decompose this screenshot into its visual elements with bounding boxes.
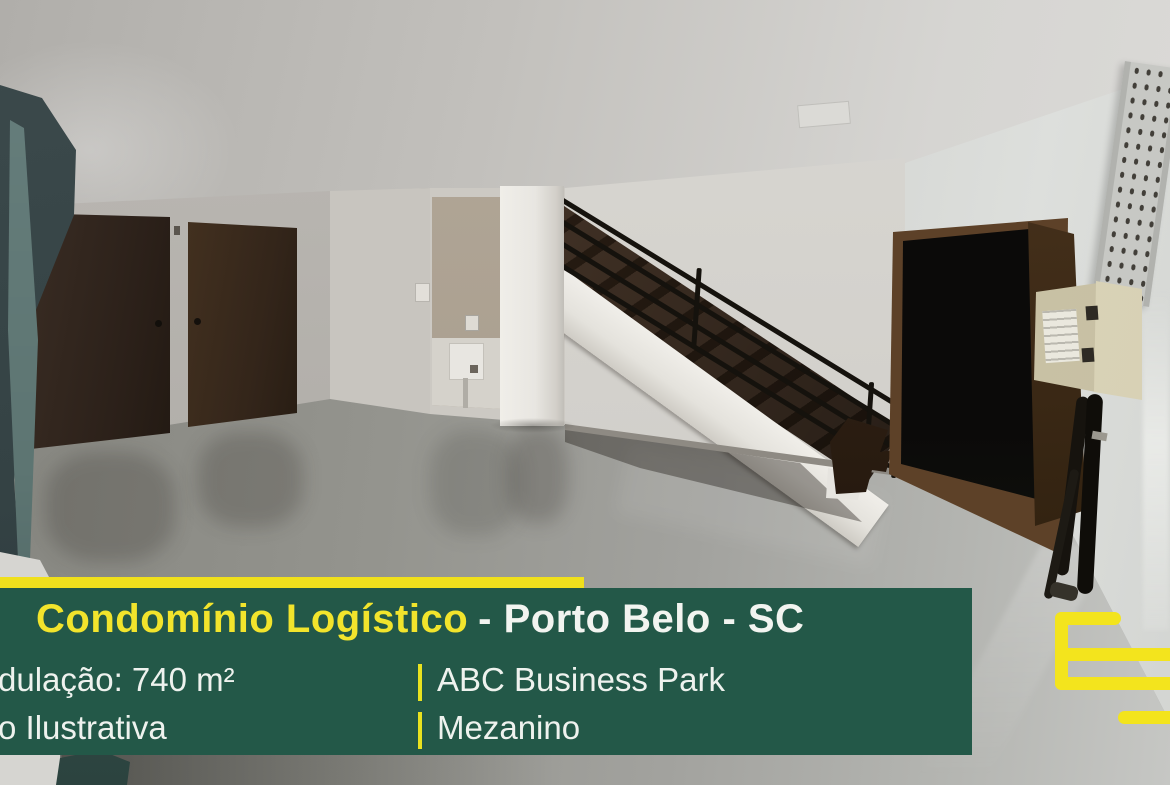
detail-area-value: dulação: 740 m²: [0, 659, 235, 701]
door-handle: [194, 318, 201, 325]
light-switch: [415, 283, 430, 302]
wood-door-right: [188, 222, 297, 427]
box-latch: [1086, 306, 1099, 321]
yellow-e-logo-icon: [1055, 612, 1121, 625]
floor-shadow-strip: [60, 752, 720, 785]
yellow-e-logo-icon: [1055, 677, 1170, 690]
title-rest: - Porto Belo - SC: [478, 597, 804, 641]
pipe-separator: [418, 712, 422, 749]
flyer-canvas: Condomínio Logístico- Porto Belo - SC du…: [0, 0, 1170, 785]
floor-reflection: [45, 452, 175, 562]
detail-park-name: ABC Business Park: [437, 659, 725, 701]
valve: [470, 365, 478, 373]
floor-reflection: [430, 430, 520, 535]
ceiling-access-hatch: [797, 101, 851, 128]
banner-accent-bar: [0, 577, 584, 588]
pipe: [463, 378, 468, 408]
box-latch: [1082, 348, 1095, 363]
power-outlet: [465, 315, 479, 331]
detail-photo-note: o Ilustrativa: [0, 707, 167, 749]
pillar-shadow: [490, 418, 576, 433]
title-highlight: Condomínio Logístico: [36, 597, 468, 641]
yellow-logo-bar: [1118, 711, 1170, 724]
floor-reflection: [198, 432, 303, 527]
wall-highlight: [1143, 290, 1169, 630]
plumbing-fixture: [449, 343, 484, 380]
floor-reflection: [508, 428, 568, 523]
detail-mezzanine: Mezanino: [437, 707, 580, 749]
pipe-separator: [418, 664, 422, 701]
banner-title: Condomínio Logístico- Porto Belo - SC: [36, 594, 804, 644]
yellow-e-logo-icon: [1055, 648, 1170, 661]
white-pillar: [500, 186, 564, 426]
door-handle: [155, 320, 162, 327]
wall-fitting: [174, 226, 180, 235]
electrical-box-label: [1042, 309, 1080, 363]
